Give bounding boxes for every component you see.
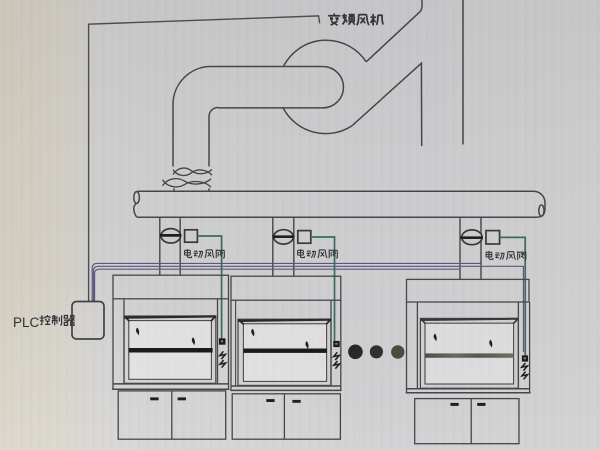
svg-text:PLC: PLC <box>13 315 40 330</box>
